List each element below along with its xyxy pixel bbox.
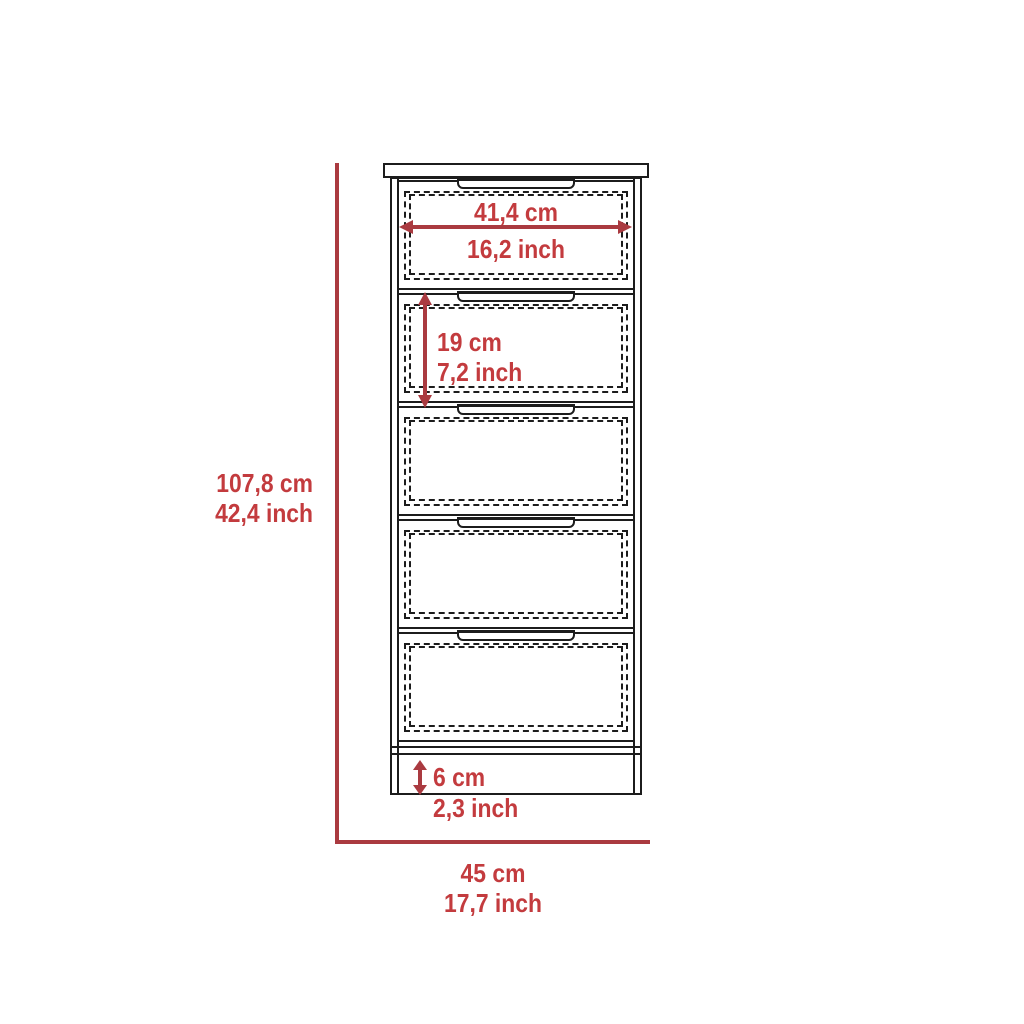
- base-height-inch: 2,3 inch: [433, 793, 518, 823]
- drawer-box-outline: [409, 646, 623, 727]
- drawer-box-outline: [409, 533, 623, 614]
- cabinet-bottom-rail: [392, 746, 640, 755]
- overall-width-cm: 45 cm: [402, 858, 583, 888]
- drawer-handle: [457, 517, 575, 528]
- overall-width-label: 45 cm 17,7 inch: [402, 858, 583, 918]
- drawer-4: [397, 519, 635, 629]
- arrow-shaft: [423, 303, 427, 397]
- drawer-height-arrow: [418, 292, 432, 408]
- arrow-head-down-icon: [413, 785, 427, 795]
- overall-height-label: 107,8 cm 42,4 inch: [172, 468, 313, 528]
- drawer-width-inch: 16,2 inch: [419, 234, 613, 264]
- drawer-height-inch: 7,2 inch: [437, 357, 522, 387]
- overall-height-cm: 107,8 cm: [172, 468, 313, 498]
- arrow-head-right-icon: [618, 220, 632, 234]
- drawer-handle: [457, 291, 575, 302]
- arrow-shaft: [418, 769, 422, 786]
- drawer-height-cm: 19 cm: [437, 327, 522, 357]
- base-height-cm: 6 cm: [433, 762, 485, 792]
- cabinet-top-board: [383, 163, 649, 178]
- drawer-handle: [457, 404, 575, 415]
- drawer-box-outline: [409, 420, 623, 501]
- dimension-diagram: 107,8 cm 42,4 inch 45 cm 17,7 inch: [0, 0, 1024, 1024]
- drawer-handle: [457, 178, 575, 189]
- cabinet-body: [390, 177, 642, 795]
- drawer-5: [397, 632, 635, 742]
- drawer-handle: [457, 630, 575, 641]
- base-height-arrow: [413, 760, 427, 795]
- overall-height-inch: 42,4 inch: [172, 498, 313, 528]
- arrow-head-down-icon: [418, 395, 432, 408]
- drawer-width-cm: 41,4 cm: [419, 197, 613, 227]
- overall-width-dimension-line: [335, 840, 650, 844]
- overall-width-inch: 17,7 inch: [402, 888, 583, 918]
- overall-height-dimension-line: [335, 163, 339, 844]
- drawer-3: [397, 406, 635, 516]
- drawer-height-label: 19 cm 7,2 inch: [437, 327, 522, 387]
